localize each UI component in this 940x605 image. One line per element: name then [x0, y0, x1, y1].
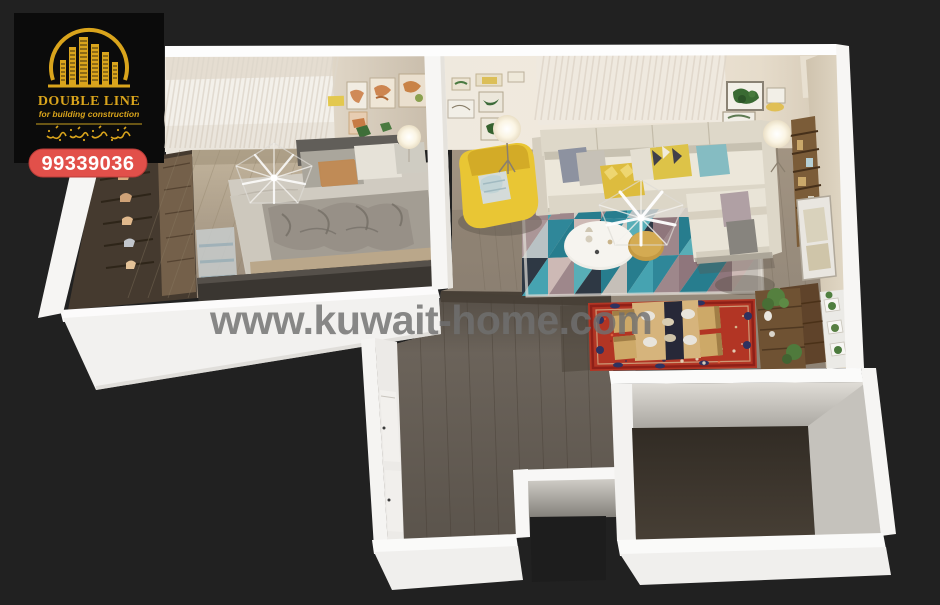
svg-text:99339036: 99339036 — [42, 153, 135, 175]
svg-text:for building construction: for building construction — [39, 109, 140, 119]
svg-text:www.kuwait-home.com: www.kuwait-home.com — [209, 297, 652, 343]
svg-text:DOUBLE LINE: DOUBLE LINE — [38, 94, 140, 109]
